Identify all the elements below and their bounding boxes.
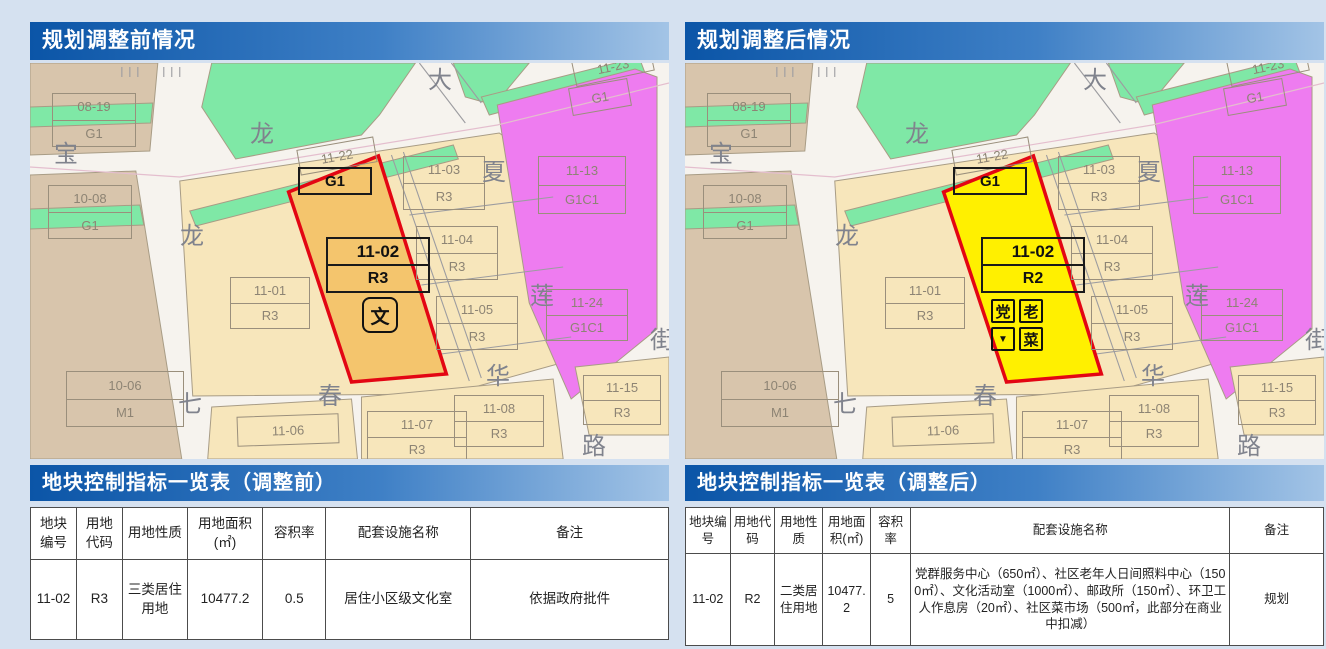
col-header-remarks: 备注 <box>1230 508 1324 554</box>
street-name-label: 夏 <box>1137 161 1161 185</box>
parcel-label-11-15: 11-15R3 <box>583 375 661 425</box>
street-name-label: 莲 <box>530 285 554 309</box>
cell-land-use: 二类居住用地 <box>775 554 823 646</box>
street-name-label: 华 <box>1141 365 1165 389</box>
panel-before: 规划调整前情况 08-19G110-08G110-06M111-01R311-0… <box>30 22 669 640</box>
parcel-code: 11-13 <box>1194 157 1280 186</box>
parcel-code: 11-03 <box>404 157 484 184</box>
parcel-label-11-13: 11-13G1C1 <box>538 156 626 214</box>
parcel-code: 11-01 <box>886 278 964 304</box>
parcel-label-11-03: 11-03R3 <box>1058 156 1140 210</box>
parcel-label-11-06: 11-06 <box>892 413 995 447</box>
page: 规划调整前情况 08-19G110-08G110-06M111-01R311-0… <box>0 0 1326 649</box>
map-before: 08-19G110-08G110-06M111-01R311-03R311-04… <box>30 63 669 459</box>
col-header-remarks: 备注 <box>471 508 669 560</box>
table-header-row: 地块编号 用地代码 用地性质 用地面积(㎡) 容积率 配套设施名称 备注 <box>31 508 669 560</box>
parcel-code: 11-24 <box>1202 290 1282 316</box>
parcel-label-11-03: 11-03R3 <box>403 156 485 210</box>
cell-far: 5 <box>871 554 911 646</box>
parcel-label-10-08: 10-08G1 <box>703 185 787 239</box>
parcel-label-11-15: 11-15R3 <box>1238 375 1316 425</box>
map-parcel <box>202 63 416 159</box>
street-name-label: 路 <box>1237 435 1261 459</box>
parcel-label-11-24: 11-24G1C1 <box>1201 289 1283 341</box>
parcel-use-code: G1C1 <box>1194 186 1280 214</box>
flag-icon: ▼ <box>991 327 1015 351</box>
parcel-code: 11-15 <box>584 376 660 401</box>
cell-remarks: 依据政府批件 <box>471 560 669 640</box>
panel-after-title: 规划调整后情况 <box>685 22 1324 60</box>
parcel-label-10-06: 10-06M1 <box>66 371 184 427</box>
parcel-code: 11-15 <box>1239 376 1315 401</box>
parcel-code: 08-19 <box>708 94 790 121</box>
street-name-label: 龙 <box>180 225 204 249</box>
parcel-use-code: R3 <box>1059 184 1139 210</box>
parcel-use-code: R3 <box>1239 401 1315 425</box>
parcel-use-code: R3 <box>1092 324 1172 350</box>
col-header-land-area: 用地面积(㎡) <box>187 508 262 560</box>
parcel-label-11-08: 11-08R3 <box>1109 395 1199 447</box>
parcel-code: 11-13 <box>539 157 625 186</box>
panel-after: 规划调整后情况 08-19G110-08G110-06M111-01R311-0… <box>685 22 1324 646</box>
parcel-use-code: R3 <box>437 324 517 350</box>
street-name-label: 夏 <box>482 161 506 185</box>
parcel-code: 11-24 <box>547 290 627 316</box>
highlight-parcel-label: 11-02R2 <box>981 237 1085 293</box>
highlight-parcel-code: 11-02 <box>328 239 428 266</box>
highlight-parcel-label: 11-02R3 <box>326 237 430 293</box>
elderly-care-icon: 老 <box>1019 299 1043 323</box>
parcel-code: 10-08 <box>704 186 786 213</box>
cell-land-code: R2 <box>730 554 775 646</box>
parcel-label-08-19: 08-19G1 <box>707 93 791 147</box>
cell-land-area: 10477.2 <box>187 560 262 640</box>
parcel-use-code: G1 <box>49 213 131 239</box>
parcel-code: 11-05 <box>437 297 517 324</box>
parcel-label-11-07: 11-07R3 <box>367 411 467 459</box>
cell-facilities: 党群服务中心（650㎡）、社区老年人日间照料中心（1500㎡）、文化活动室（10… <box>911 554 1230 646</box>
cell-land-code: R3 <box>76 560 122 640</box>
street-name-label: 华 <box>486 365 510 389</box>
highlight-parcel-use: R3 <box>328 266 428 291</box>
parcel-use-code: G1C1 <box>1202 316 1282 341</box>
parcel-code: 11-05 <box>1092 297 1172 324</box>
street-name-label: 宝 <box>709 143 733 167</box>
street-name-label: 七 <box>833 393 857 417</box>
col-header-land-use: 用地性质 <box>122 508 187 560</box>
parcel-label-10-06: 10-06M1 <box>721 371 839 427</box>
parcel-code: 10-08 <box>49 186 131 213</box>
parcel-code: 11-08 <box>1110 396 1198 422</box>
cell-land-area: 10477.2 <box>823 554 871 646</box>
parcel-use-code: R3 <box>1023 438 1121 460</box>
parcel-code: 08-19 <box>53 94 135 121</box>
parcel-use-code: R3 <box>455 422 543 447</box>
cell-remarks: 规划 <box>1230 554 1324 646</box>
table-header-row: 地块编号 用地代码 用地性质 用地面积(㎡) 容积率 配套设施名称 备注 <box>686 508 1324 554</box>
parcel-label-11-08: 11-08R3 <box>454 395 544 447</box>
parcel-code: 11-07 <box>368 412 466 438</box>
col-header-land-code: 用地代码 <box>730 508 775 554</box>
street-name-label: 街 <box>650 329 669 353</box>
culture-room-icon: 文 <box>362 297 398 333</box>
col-header-facilities: 配套设施名称 <box>326 508 471 560</box>
parcel-label-11-01: 11-01R3 <box>230 277 310 329</box>
parcel-label-11-07: 11-07R3 <box>1022 411 1122 459</box>
parcel-code: 11-08 <box>455 396 543 422</box>
parcel-use-code: R3 <box>368 438 466 460</box>
parcel-label-08-19: 08-19G1 <box>52 93 136 147</box>
parcel-use-code: R3 <box>404 184 484 210</box>
parcel-use-code: R3 <box>1110 422 1198 447</box>
street-name-label: 龙 <box>905 123 929 147</box>
highlight-parcel-use: R2 <box>983 266 1083 291</box>
street-name-label: 龙 <box>250 123 274 147</box>
col-header-land-code: 用地代码 <box>76 508 122 560</box>
col-header-plot-no: 地块编号 <box>31 508 77 560</box>
table-title-after: 地块控制指标一览表（调整后） <box>685 465 1324 501</box>
party-service-icon: 党 <box>991 299 1015 323</box>
street-name-label: 路 <box>582 435 606 459</box>
street-name-label: 春 <box>318 385 342 409</box>
parcel-label-11-06: 11-06 <box>237 413 340 447</box>
cell-facilities: 居住小区级文化室 <box>326 560 471 640</box>
table-row: 11-02 R3 三类居住用地 10477.2 0.5 居住小区级文化室 依据政… <box>31 560 669 640</box>
parcel-label-11-05: 11-05R3 <box>1091 296 1173 350</box>
parcel-use-code: R3 <box>584 401 660 425</box>
parcel-use-code: R3 <box>886 304 964 329</box>
cell-plot-no: 11-02 <box>686 554 731 646</box>
street-name-label: 莲 <box>1185 285 1209 309</box>
street-name-label: 大 <box>1083 69 1107 93</box>
map-after: 08-19G110-08G110-06M111-01R311-03R311-04… <box>685 63 1324 459</box>
panel-before-title: 规划调整前情况 <box>30 22 669 60</box>
parcel-use-code: G1C1 <box>547 316 627 341</box>
parcel-use-code: G1 <box>704 213 786 239</box>
g1-annotation-box: G1 <box>298 167 372 195</box>
control-table-after: 地块编号 用地代码 用地性质 用地面积(㎡) 容积率 配套设施名称 备注 11-… <box>685 507 1324 646</box>
parcel-code: 11-07 <box>1023 412 1121 438</box>
parcel-use-code: R3 <box>231 304 309 329</box>
table-row: 11-02 R2 二类居住用地 10477.2 5 党群服务中心（650㎡）、社… <box>686 554 1324 646</box>
parcel-use-code: M1 <box>67 400 183 427</box>
street-name-label: 大 <box>428 69 452 93</box>
col-header-far: 容积率 <box>871 508 911 554</box>
map-parcel <box>857 63 1071 159</box>
parcel-label-11-24: 11-24G1C1 <box>546 289 628 341</box>
col-header-land-area: 用地面积(㎡) <box>823 508 871 554</box>
parcel-label-10-08: 10-08G1 <box>48 185 132 239</box>
street-name-label: 龙 <box>835 225 859 249</box>
parcel-code: 10-06 <box>67 372 183 400</box>
parcel-code: 11-01 <box>231 278 309 304</box>
parcel-code: 10-06 <box>722 372 838 400</box>
parcel-label-11-05: 11-05R3 <box>436 296 518 350</box>
cell-land-use: 三类居住用地 <box>122 560 187 640</box>
col-header-far: 容积率 <box>263 508 326 560</box>
col-header-land-use: 用地性质 <box>775 508 823 554</box>
parcel-code: 11-03 <box>1059 157 1139 184</box>
g1-annotation-box: G1 <box>953 167 1027 195</box>
parcel-label-11-13: 11-13G1C1 <box>1193 156 1281 214</box>
street-name-label: 七 <box>178 393 202 417</box>
table-title-before: 地块控制指标一览表（调整前） <box>30 465 669 501</box>
street-name-label: 春 <box>973 385 997 409</box>
parcel-label-11-01: 11-01R3 <box>885 277 965 329</box>
col-header-facilities: 配套设施名称 <box>911 508 1230 554</box>
street-name-label: 宝 <box>54 143 78 167</box>
highlight-parcel-code: 11-02 <box>983 239 1083 266</box>
street-name-label: 街 <box>1305 329 1324 353</box>
parcel-use-code: M1 <box>722 400 838 427</box>
market-icon: 菜 <box>1019 327 1043 351</box>
control-table-before: 地块编号 用地代码 用地性质 用地面积(㎡) 容积率 配套设施名称 备注 11-… <box>30 507 669 640</box>
cell-far: 0.5 <box>263 560 326 640</box>
col-header-plot-no: 地块编号 <box>686 508 731 554</box>
parcel-use-code: G1C1 <box>539 186 625 214</box>
cell-plot-no: 11-02 <box>31 560 77 640</box>
